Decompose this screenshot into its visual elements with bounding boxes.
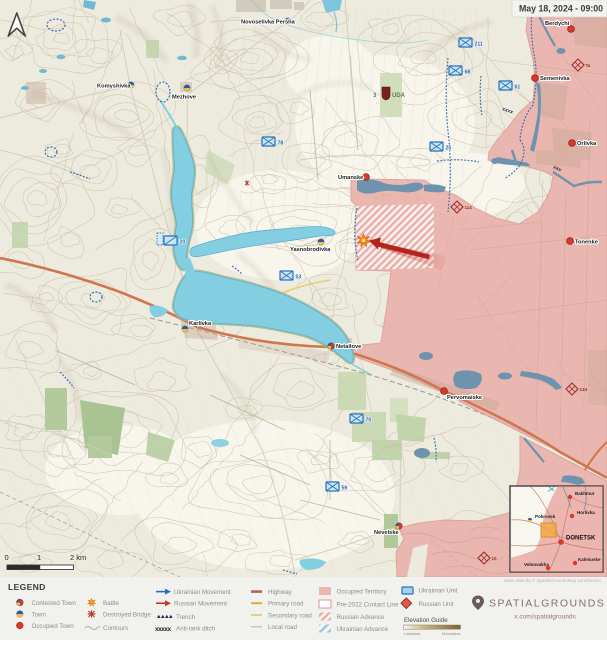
- svg-text:10: 10: [492, 556, 498, 561]
- svg-text:Pre-2022 Contact Line: Pre-2022 Contact Line: [337, 602, 399, 609]
- svg-text:May 18, 2024 - 09:00: May 18, 2024 - 09:00: [519, 4, 603, 14]
- svg-text:Base data by © SpatialGroundsM: Base data by © SpatialGroundsMap contrib…: [504, 577, 601, 583]
- svg-text:Volnovakha: Volnovakha: [524, 562, 549, 567]
- svg-text:Mezhove: Mezhove: [172, 95, 196, 101]
- svg-text:SPATIALGROUNDS: SPATIALGROUNDS: [489, 598, 605, 610]
- svg-text:Anti-tank ditch: Anti-tank ditch: [176, 626, 216, 633]
- svg-text:Komyshivka: Komyshivka: [97, 84, 131, 90]
- svg-text:211: 211: [475, 42, 483, 48]
- svg-text:Destroyed Bridge: Destroyed Bridge: [103, 612, 151, 619]
- svg-text:Semenivka: Semenivka: [540, 76, 571, 82]
- svg-text:LEGEND: LEGEND: [8, 582, 46, 592]
- svg-text:Primary road: Primary road: [268, 601, 304, 608]
- svg-text:UDA: UDA: [392, 93, 406, 99]
- svg-text:Battle: Battle: [103, 600, 119, 607]
- svg-text:x.com/spatialgrounds: x.com/spatialgrounds: [514, 614, 576, 621]
- svg-text:DONETSK: DONETSK: [566, 536, 596, 542]
- svg-text:Nevelske: Nevelske: [374, 530, 399, 536]
- svg-text:Kalmiuske: Kalmiuske: [578, 557, 601, 562]
- svg-text:25: 25: [446, 146, 452, 152]
- svg-text:20: 20: [180, 240, 186, 246]
- svg-text:0: 0: [5, 553, 9, 562]
- svg-text:Russian Unit: Russian Unit: [419, 601, 454, 608]
- svg-text:Trench: Trench: [176, 614, 196, 621]
- svg-text:114: 114: [465, 205, 473, 210]
- svg-text:68: 68: [465, 70, 471, 76]
- svg-text:Karlivka: Karlivka: [189, 321, 212, 327]
- svg-text:xxxxx: xxxxx: [155, 626, 171, 633]
- svg-text:Orlivka: Orlivka: [577, 141, 597, 147]
- svg-text:Berdychi: Berdychi: [545, 21, 570, 27]
- svg-text:Pervomaiske: Pervomaiske: [447, 395, 482, 401]
- svg-text:Mountains: Mountains: [442, 631, 460, 636]
- svg-text:Ukrainian Movement: Ukrainian Movement: [174, 589, 231, 596]
- svg-text:Novoselivka Persha: Novoselivka Persha: [241, 20, 296, 26]
- svg-text:Tonenke: Tonenke: [575, 240, 598, 246]
- svg-text:Occupied Town: Occupied Town: [32, 623, 75, 630]
- svg-text:59: 59: [342, 486, 348, 492]
- svg-text:Bakhmut: Bakhmut: [575, 491, 595, 496]
- svg-text:Pokrovsk: Pokrovsk: [535, 514, 556, 519]
- svg-text:78: 78: [278, 141, 284, 147]
- svg-text:53: 53: [296, 275, 302, 281]
- svg-text:Highway: Highway: [268, 589, 293, 596]
- svg-text:Ta: Ta: [586, 63, 591, 68]
- svg-text:Occupied Territory: Occupied Territory: [337, 589, 388, 596]
- svg-text:134: 134: [580, 387, 588, 392]
- svg-text:Horlivka: Horlivka: [577, 510, 595, 515]
- svg-text:Contours: Contours: [103, 625, 128, 632]
- svg-text:Contested Town: Contested Town: [32, 600, 77, 607]
- svg-text:Town: Town: [32, 612, 47, 619]
- svg-text:2 km: 2 km: [70, 553, 86, 562]
- svg-text:Lowlands: Lowlands: [404, 631, 421, 636]
- svg-text:Ukrainian Advance: Ukrainian Advance: [337, 626, 389, 633]
- svg-text:Ukrainian Unit: Ukrainian Unit: [419, 588, 458, 595]
- svg-text:Russian Advance: Russian Advance: [337, 614, 385, 621]
- svg-text:70: 70: [366, 418, 372, 424]
- svg-text:1: 1: [37, 553, 41, 562]
- svg-text:Elevation Guide: Elevation Guide: [404, 617, 448, 624]
- svg-text:Yasnobrodivka: Yasnobrodivka: [290, 247, 331, 253]
- svg-text:Umanske: Umanske: [338, 175, 363, 181]
- svg-text:Secondary road: Secondary road: [268, 612, 312, 619]
- svg-text:Local road: Local road: [268, 624, 297, 631]
- svg-text:61: 61: [515, 85, 521, 91]
- svg-text:Russian Movement: Russian Movement: [174, 601, 227, 608]
- svg-text:Netailove: Netailove: [336, 344, 361, 350]
